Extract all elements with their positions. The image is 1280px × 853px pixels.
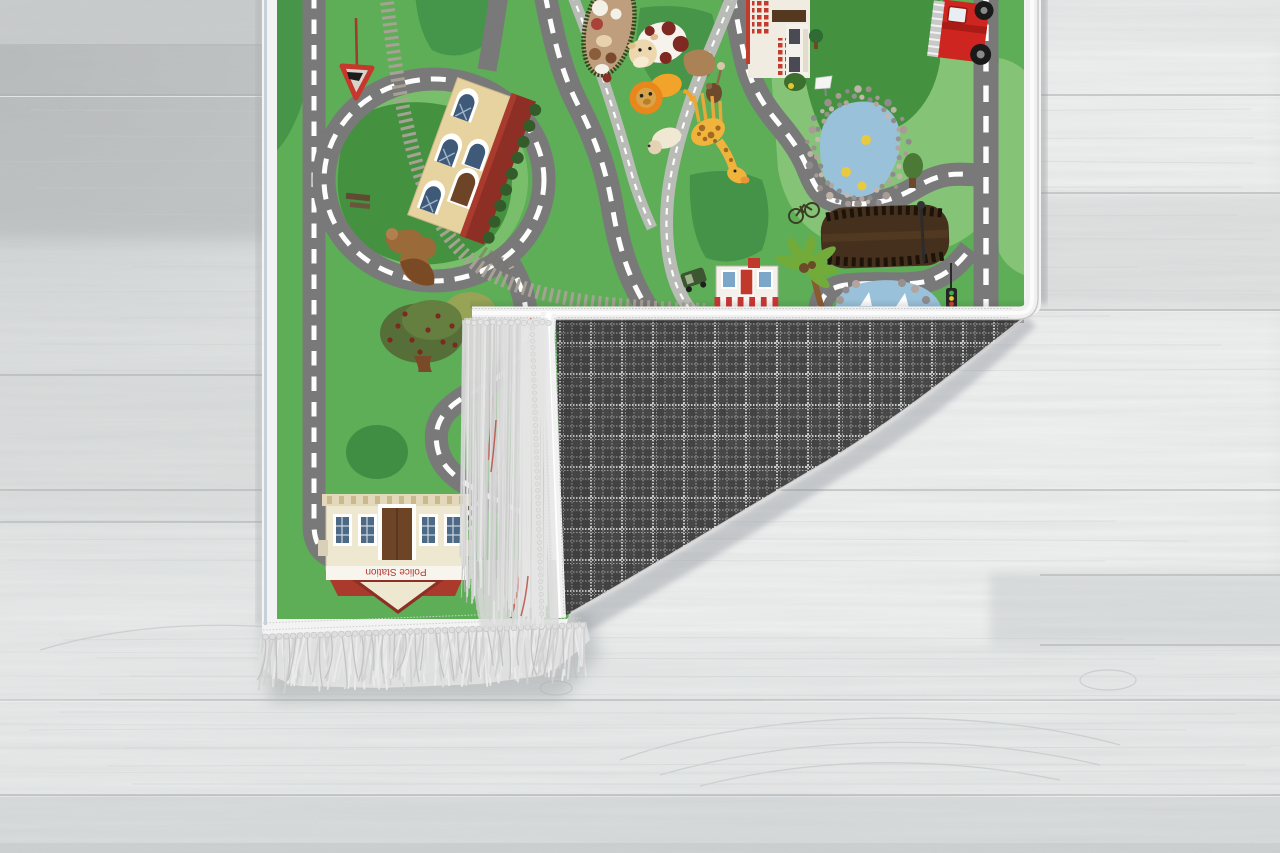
svg-text:Police Station: Police Station bbox=[365, 566, 426, 577]
